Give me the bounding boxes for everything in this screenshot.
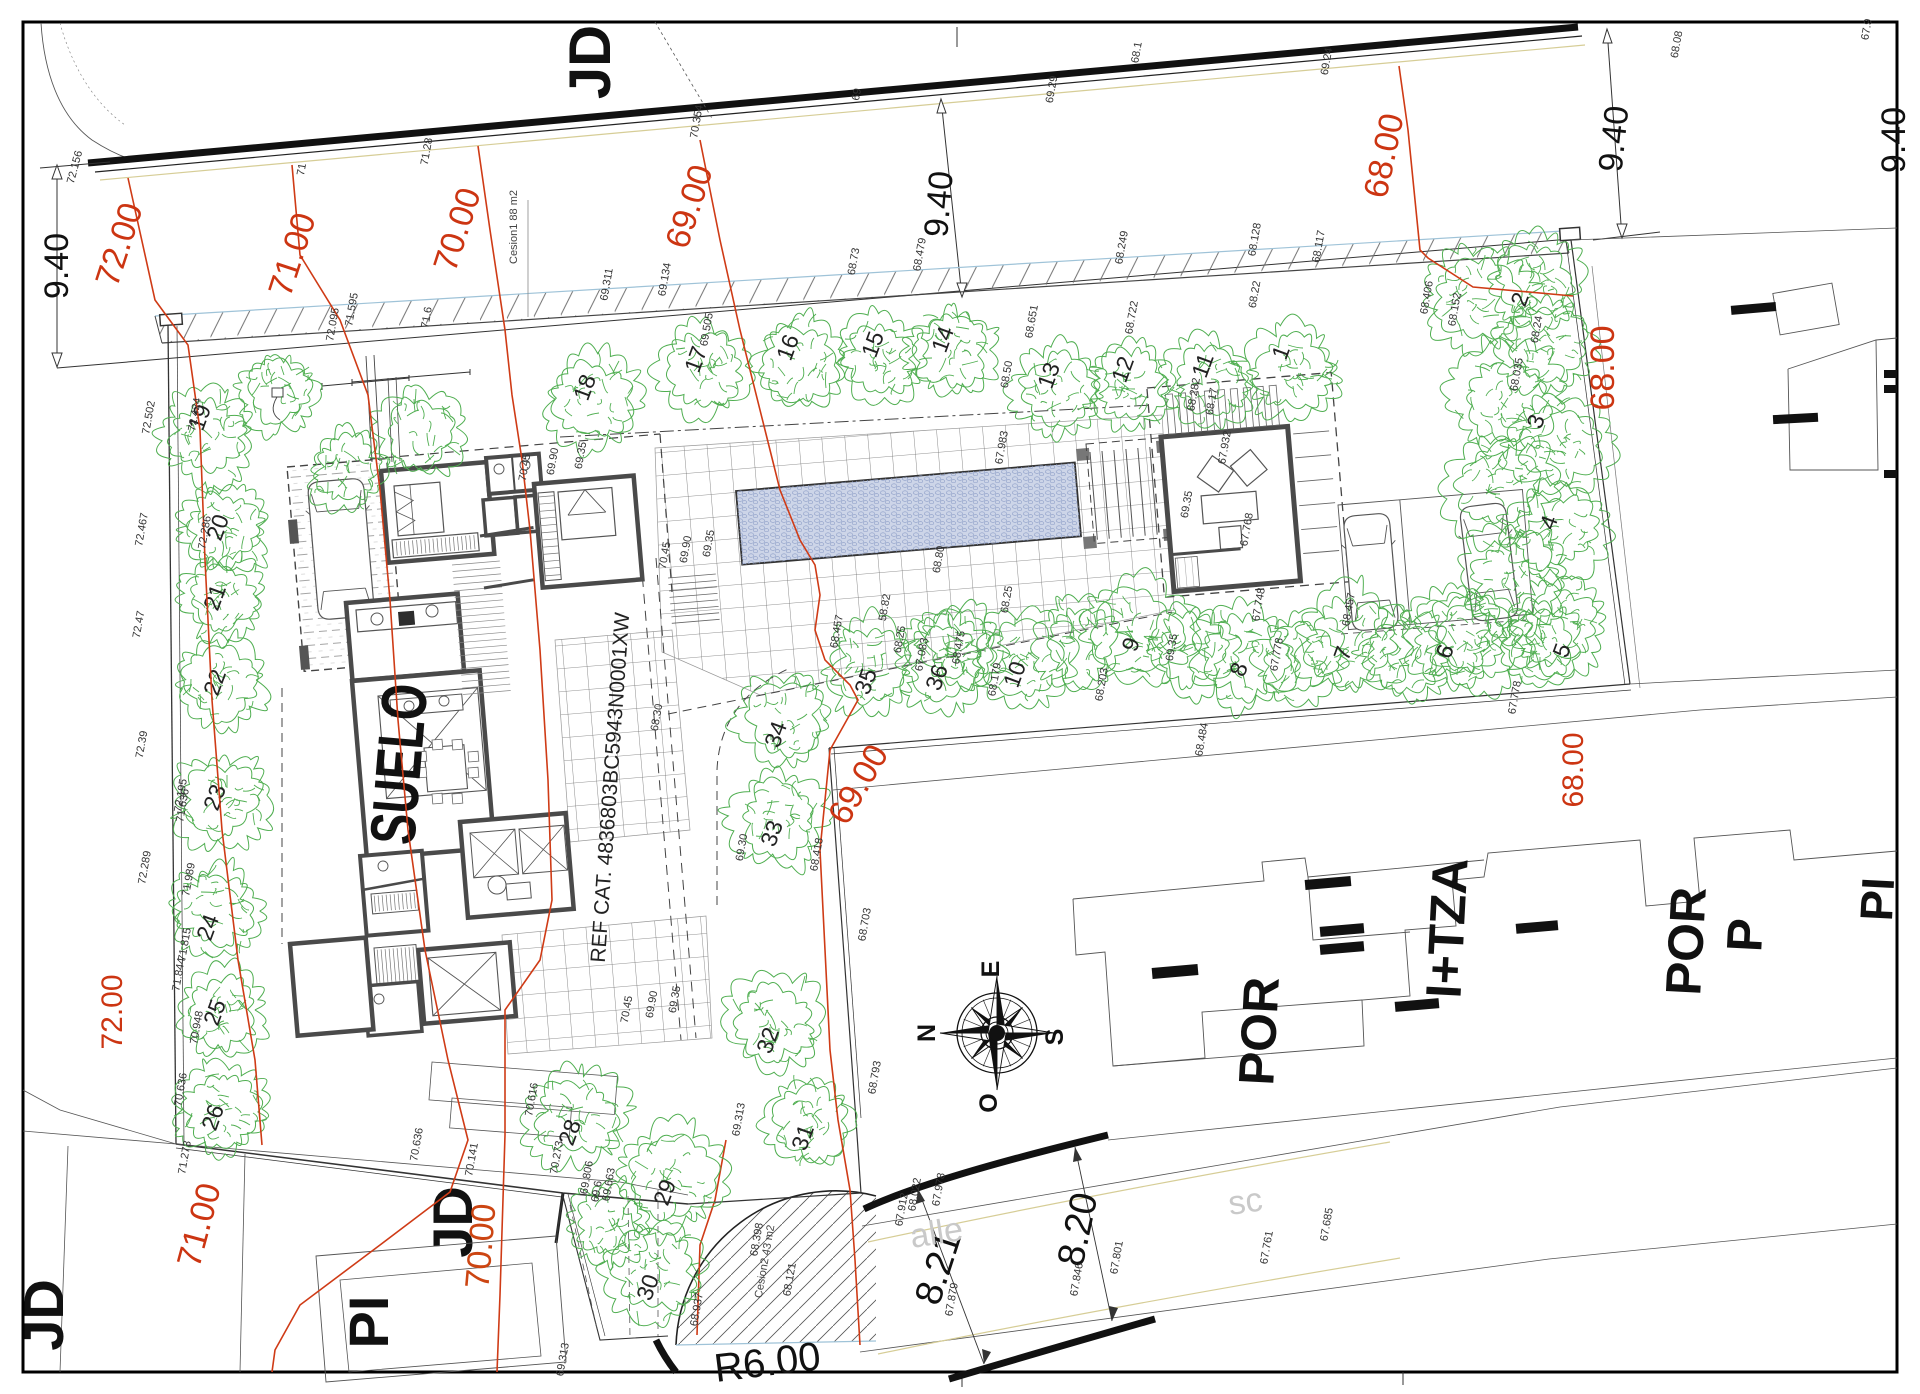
svg-text:O: O [975,1093,1003,1112]
svg-text:9.40: 9.40 [1875,107,1913,173]
svg-text:E: E [977,961,1005,978]
svg-text:9.40: 9.40 [1592,104,1637,174]
svg-text:S: S [1041,1029,1069,1046]
svg-text:N: N [913,1024,941,1042]
svg-text:70.00: 70.00 [458,1202,503,1290]
svg-text:SUELO: SUELO [356,681,441,847]
svg-text:JD: JD [12,1279,75,1351]
svg-text:69: 69 [850,87,864,101]
svg-text:I+TZA: I+TZA [1415,857,1478,1000]
svg-text:sc: sc [1226,1181,1265,1223]
svg-text:72.00: 72.00 [96,974,129,1049]
svg-text:9.40: 9.40 [917,169,961,238]
svg-text:Cesion1 88 m2: Cesion1 88 m2 [508,190,520,264]
svg-text:JD: JD [558,25,623,99]
svg-text:9.40: 9.40 [38,233,76,299]
svg-text:71: 71 [295,162,309,176]
svg-text:68.00: 68.00 [1557,732,1590,807]
svg-text:PI: PI [1850,876,1904,922]
svg-text:PI: PI [337,1296,400,1349]
svg-text:POR: POR [1228,976,1290,1087]
svg-text:POR: POR [1655,886,1717,997]
svg-text:P: P [1716,917,1774,953]
svg-text:68.00: 68.00 [1584,325,1622,410]
